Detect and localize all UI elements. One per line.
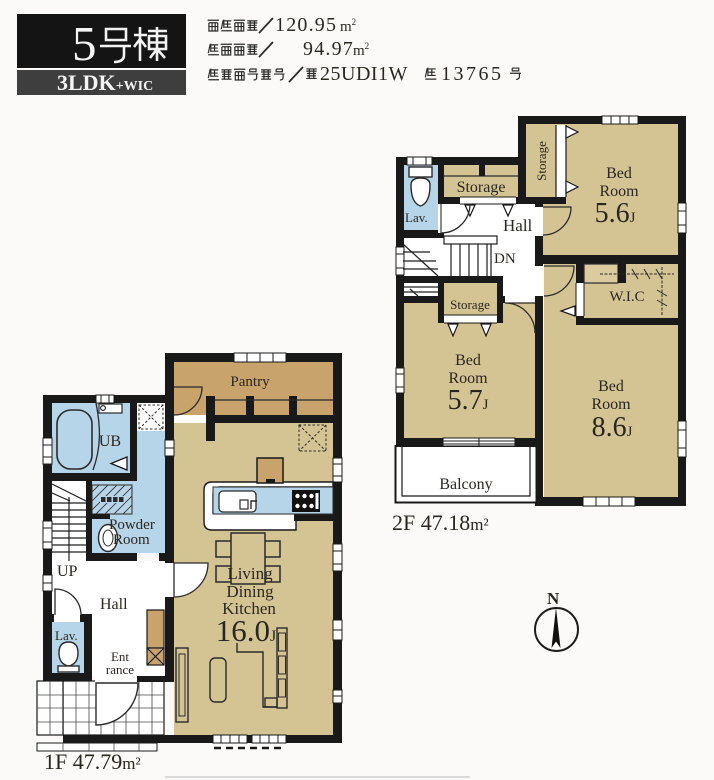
svg-text:120.95: 120.95 (275, 14, 337, 36)
svg-text:16.0J: 16.0J (216, 613, 276, 648)
svg-text:5.6J: 5.6J (595, 198, 636, 229)
svg-text:Powder: Powder (109, 517, 155, 533)
svg-text:Living: Living (227, 564, 273, 583)
svg-text:5.7J: 5.7J (448, 385, 489, 416)
svg-text:Bed: Bed (606, 165, 632, 182)
svg-text:Storage: Storage (450, 297, 490, 312)
svg-text:N: N (547, 589, 560, 608)
svg-text:Pantry: Pantry (230, 374, 270, 390)
svg-text:Hall: Hall (503, 216, 533, 235)
svg-text:25UDI1W: 25UDI1W (320, 63, 408, 85)
svg-text:Lav.: Lav. (405, 210, 428, 225)
svg-text:Storage: Storage (457, 179, 506, 196)
svg-text:5: 5 (72, 16, 97, 71)
svg-text:Bed: Bed (455, 352, 481, 369)
svg-text:Hall: Hall (100, 596, 128, 613)
svg-text:DN: DN (494, 251, 516, 267)
svg-text:94.97: 94.97 (303, 38, 354, 60)
svg-text:UP: UP (57, 563, 78, 580)
svg-text:Balcony: Balcony (439, 476, 492, 493)
svg-text:13765: 13765 (441, 63, 504, 85)
svg-text:8.6J: 8.6J (592, 412, 633, 443)
svg-text:Room: Room (113, 532, 150, 548)
svg-text:rance: rance (106, 662, 134, 677)
svg-text:Bed: Bed (598, 378, 624, 395)
svg-text:Room: Room (591, 396, 631, 413)
svg-text:W.I.C: W.I.C (609, 289, 644, 305)
svg-text:UB: UB (99, 433, 121, 450)
svg-text:Storage: Storage (534, 141, 549, 181)
svg-text:Lav.: Lav. (55, 628, 78, 643)
